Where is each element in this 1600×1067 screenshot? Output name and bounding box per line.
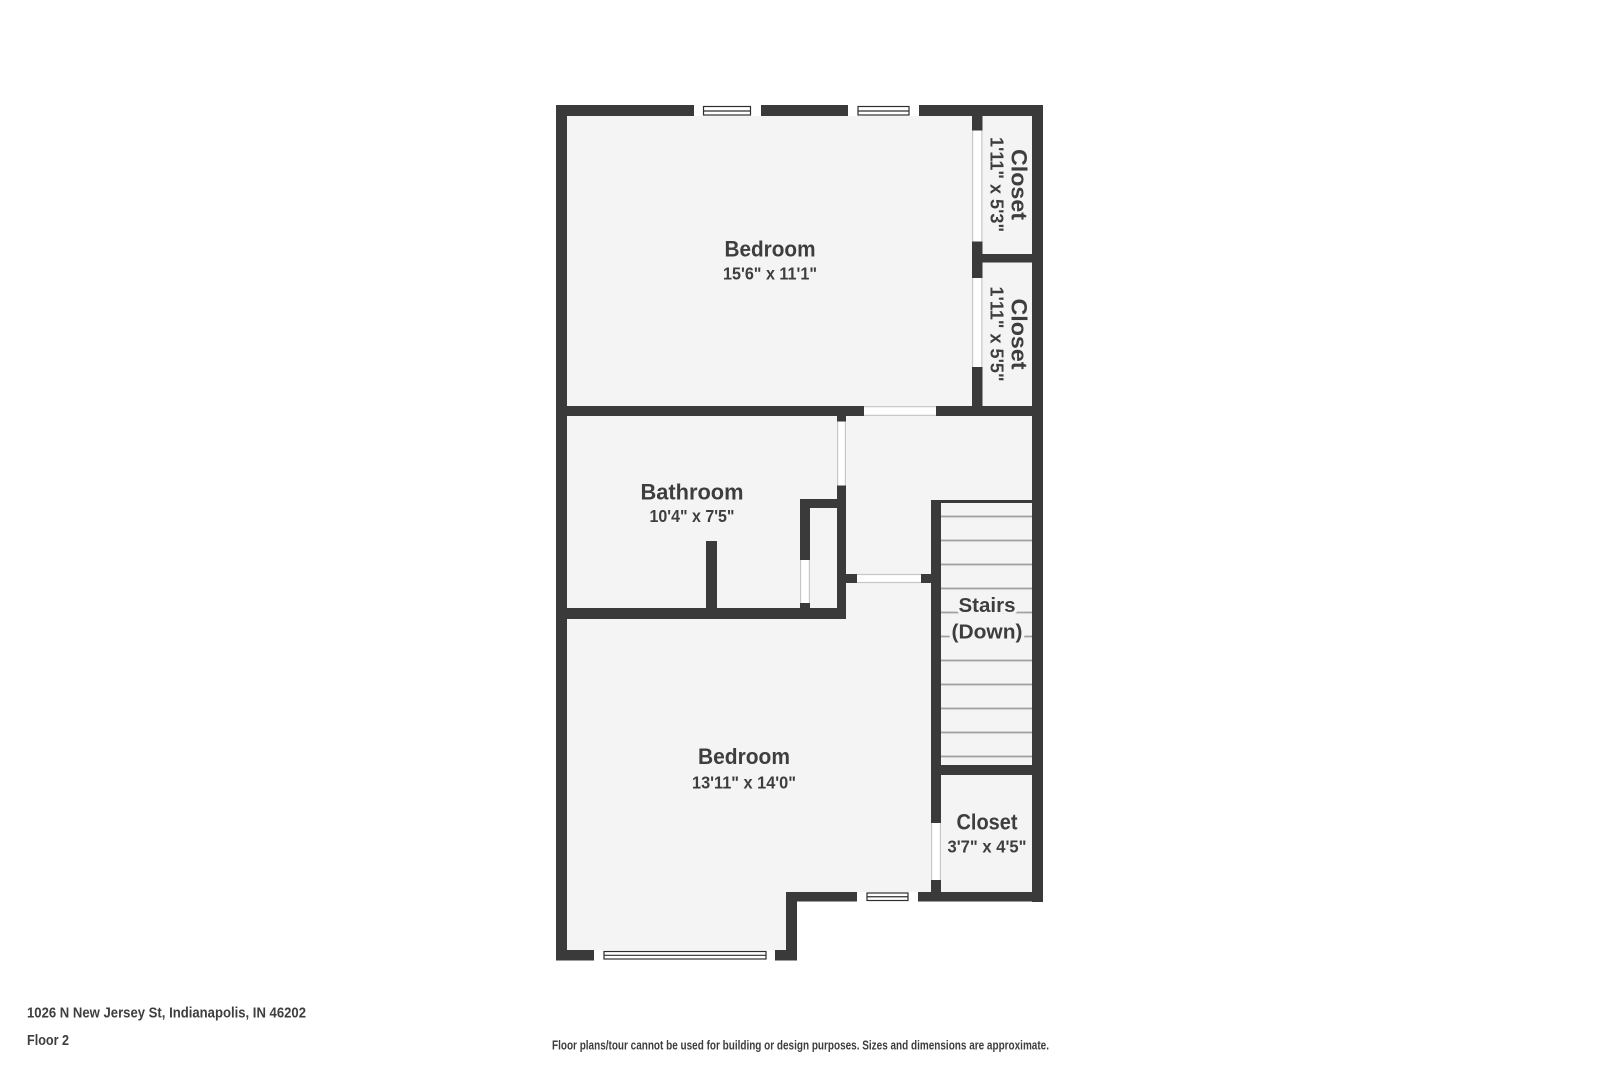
svg-text:13'11" x 14'0": 13'11" x 14'0" (692, 773, 796, 793)
svg-text:3'7" x 4'5": 3'7" x 4'5" (948, 837, 1027, 857)
svg-text:1'11" x 5'5": 1'11" x 5'5" (987, 287, 1007, 382)
svg-text:Floor plans/tour cannot be use: Floor plans/tour cannot be used for buil… (552, 1038, 1049, 1053)
svg-text:Stairs: Stairs (959, 595, 1016, 617)
svg-text:Bedroom: Bedroom (698, 744, 790, 769)
svg-text:Bathroom: Bathroom (641, 480, 744, 505)
svg-text:10'4" x 7'5": 10'4" x 7'5" (650, 506, 735, 526)
svg-text:Closet: Closet (1007, 299, 1032, 371)
svg-text:(Down): (Down) (952, 622, 1023, 644)
svg-text:Closet: Closet (957, 810, 1019, 835)
svg-text:1026 N New Jersey St, Indianap: 1026 N New Jersey St, Indianapolis, IN 4… (27, 1005, 306, 1022)
svg-text:Closet: Closet (1007, 149, 1032, 221)
svg-text:Bedroom: Bedroom (725, 237, 816, 262)
svg-text:Floor 2: Floor 2 (27, 1032, 69, 1049)
svg-text:15'6" x 11'1": 15'6" x 11'1" (723, 264, 817, 284)
svg-text:1'11" x 5'3": 1'11" x 5'3" (987, 137, 1007, 232)
